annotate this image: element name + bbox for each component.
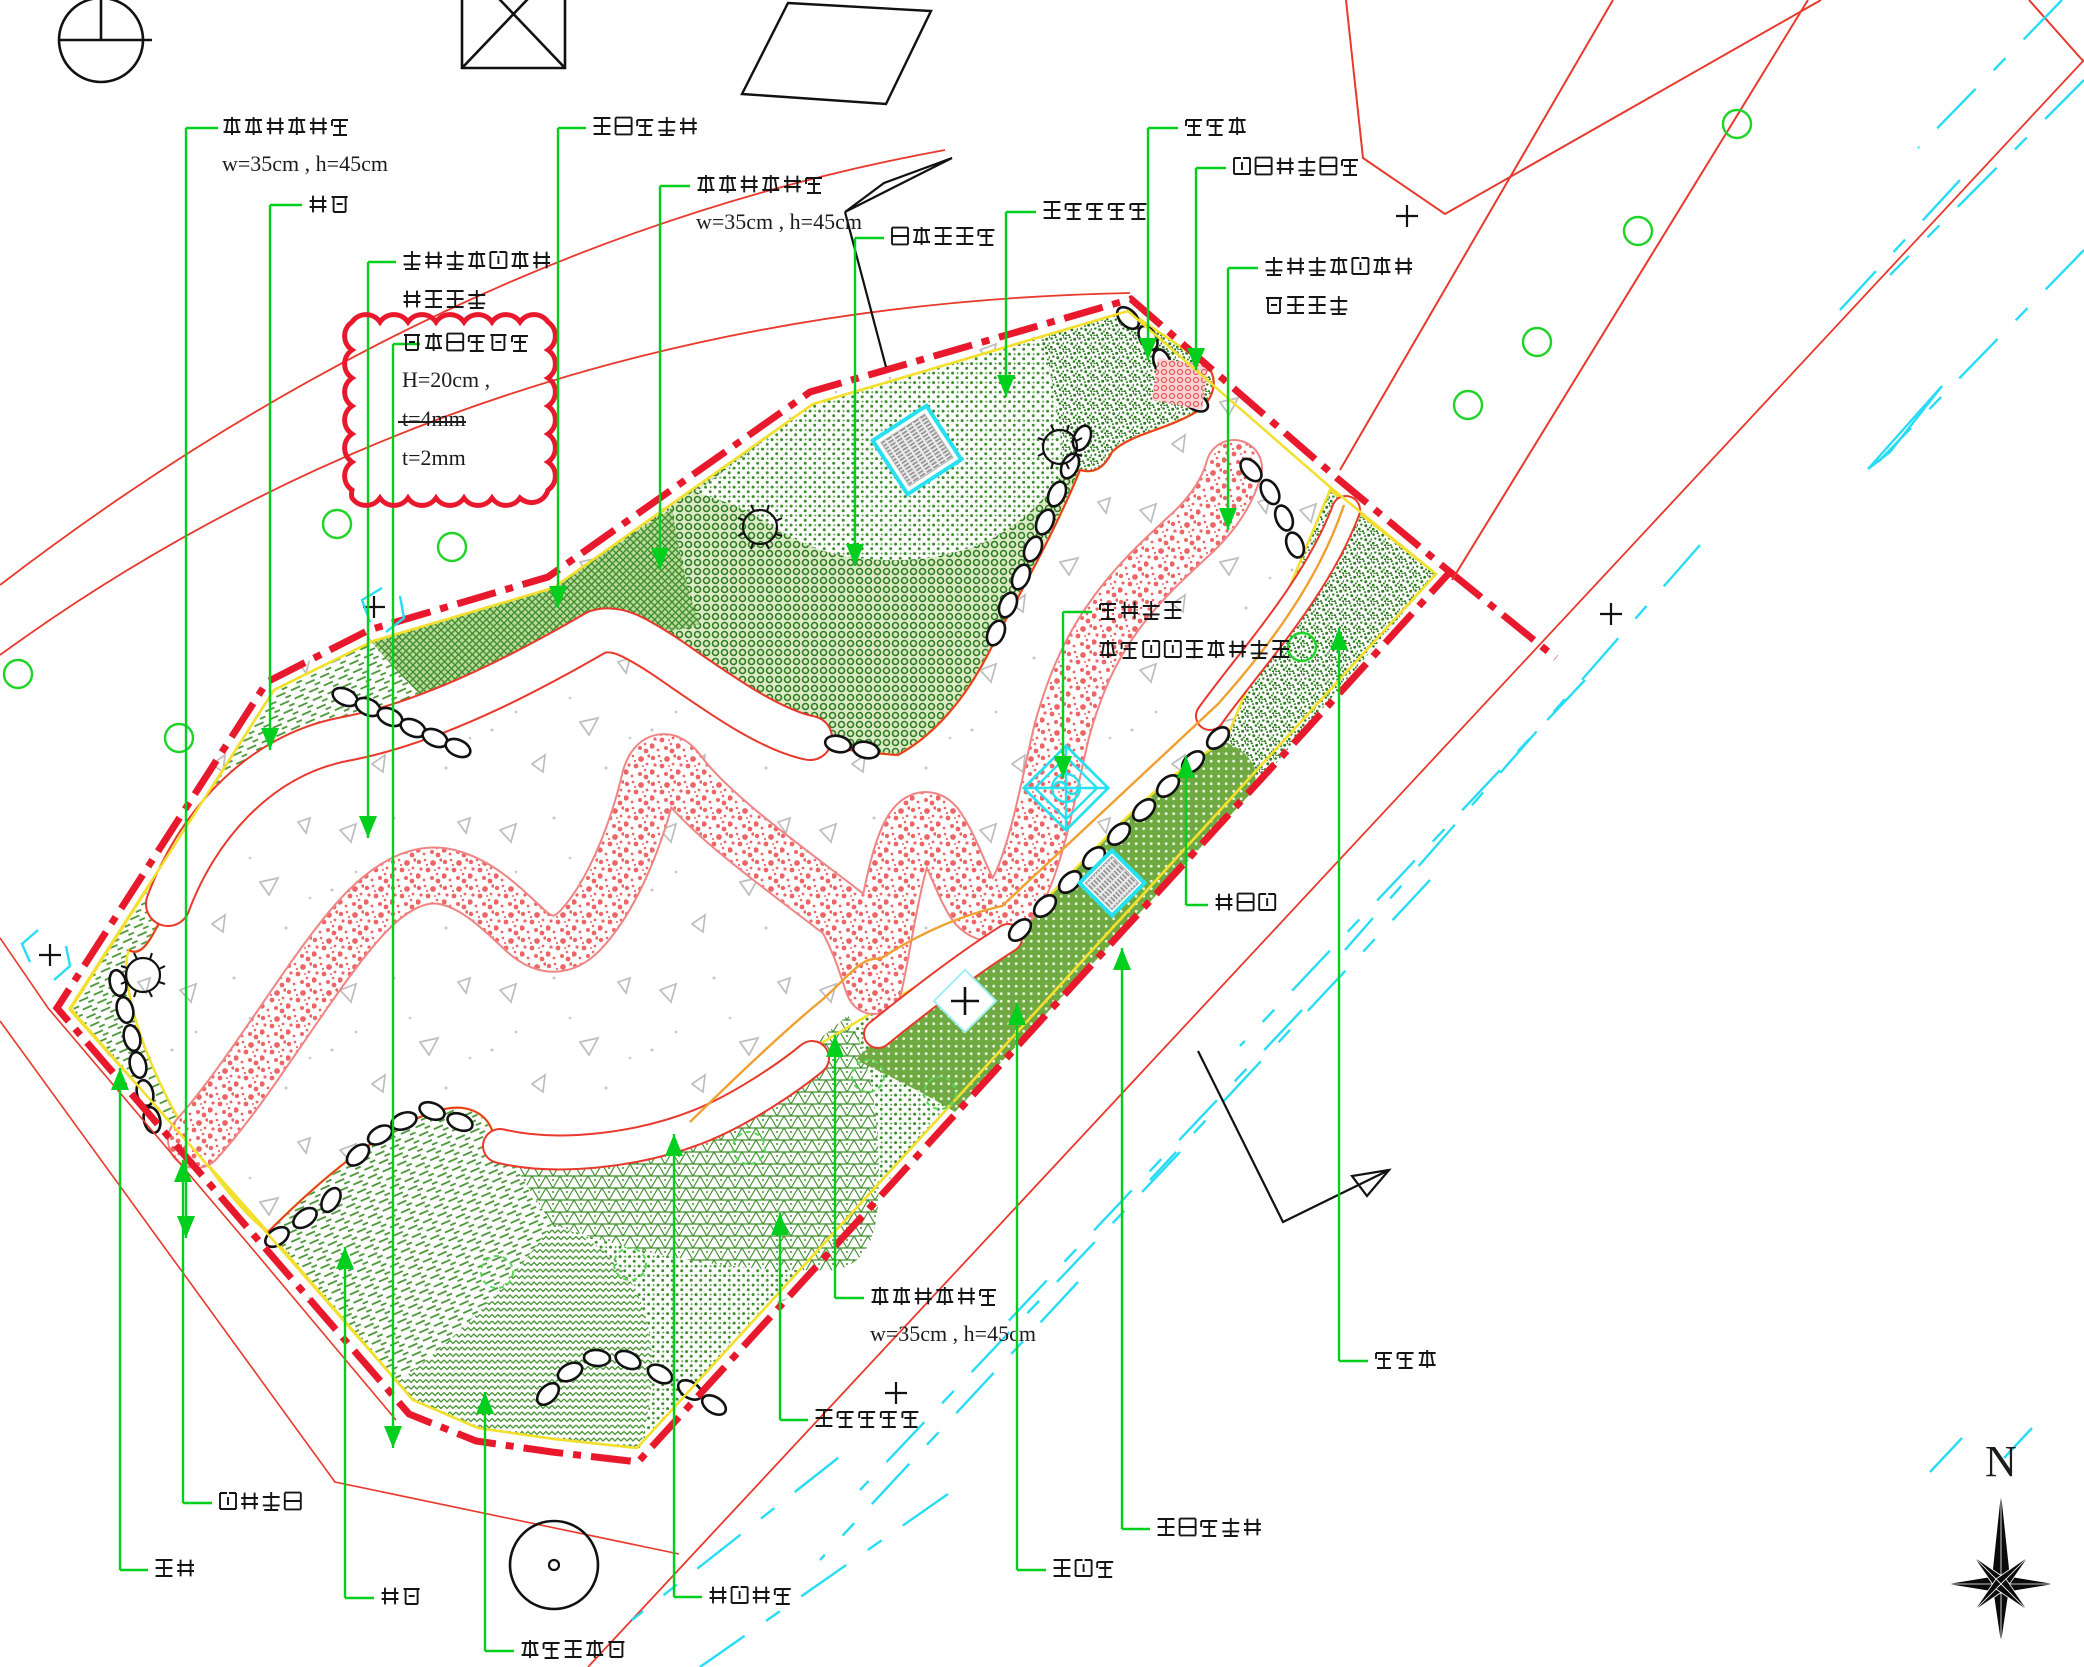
svg-text:t=4mm: t=4mm — [402, 406, 466, 431]
svg-text:w=35cm , h=45cm: w=35cm , h=45cm — [696, 209, 862, 234]
svg-text:t=2mm: t=2mm — [402, 445, 466, 470]
svg-text:N: N — [1985, 1437, 2017, 1486]
svg-text:w=35cm , h=45cm: w=35cm , h=45cm — [870, 1321, 1036, 1346]
svg-text:w=35cm , h=45cm: w=35cm , h=45cm — [222, 151, 388, 176]
svg-text:H=20cm ,: H=20cm , — [402, 367, 490, 392]
